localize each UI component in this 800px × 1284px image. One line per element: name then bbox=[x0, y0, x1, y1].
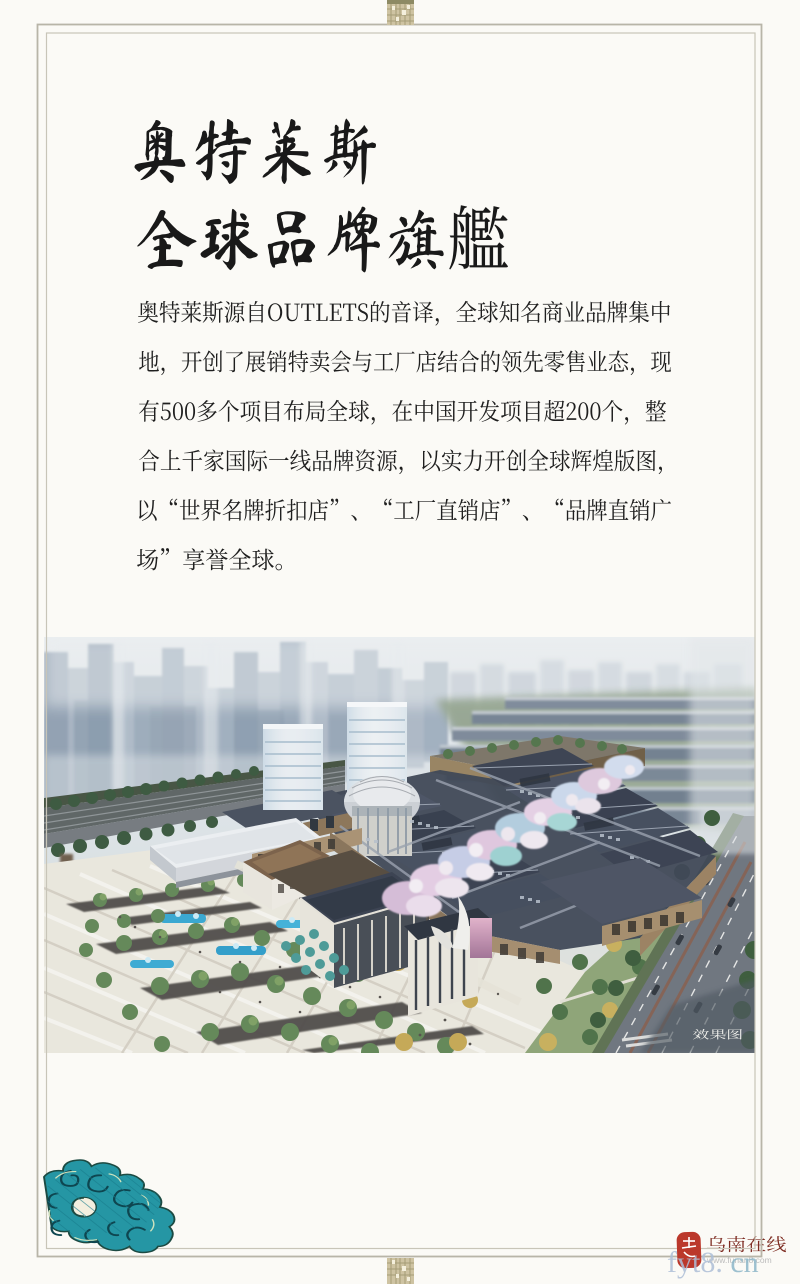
svg-text:fyt8. cn: fyt8. cn bbox=[667, 1246, 759, 1279]
